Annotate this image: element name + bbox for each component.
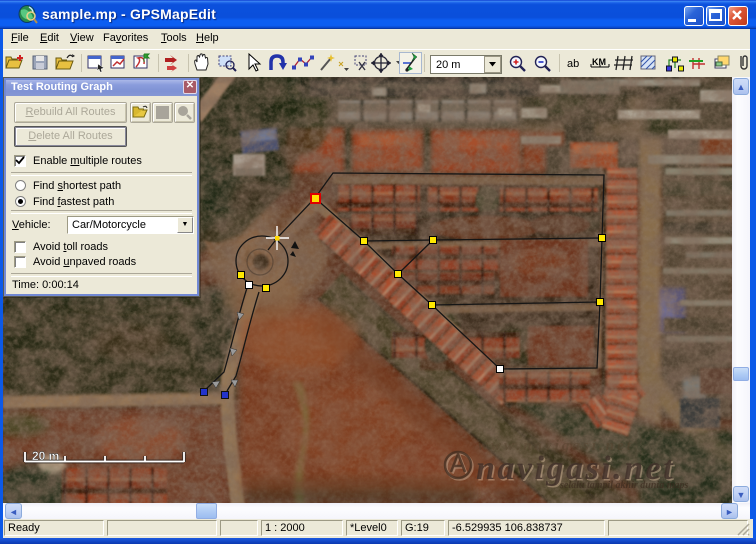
- svg-text:20 m: 20 m: [436, 59, 460, 71]
- svg-text:www.navigasi.net: www.navigasi.net: [478, 438, 634, 454]
- svg-text:selalu tampil akhir dunia maps: selalu tampil akhir dunia maps: [559, 480, 688, 491]
- svg-text:KM: KM: [592, 57, 606, 67]
- svg-text:ab: ab: [567, 58, 579, 70]
- svg-text:20 m: 20 m: [32, 449, 59, 463]
